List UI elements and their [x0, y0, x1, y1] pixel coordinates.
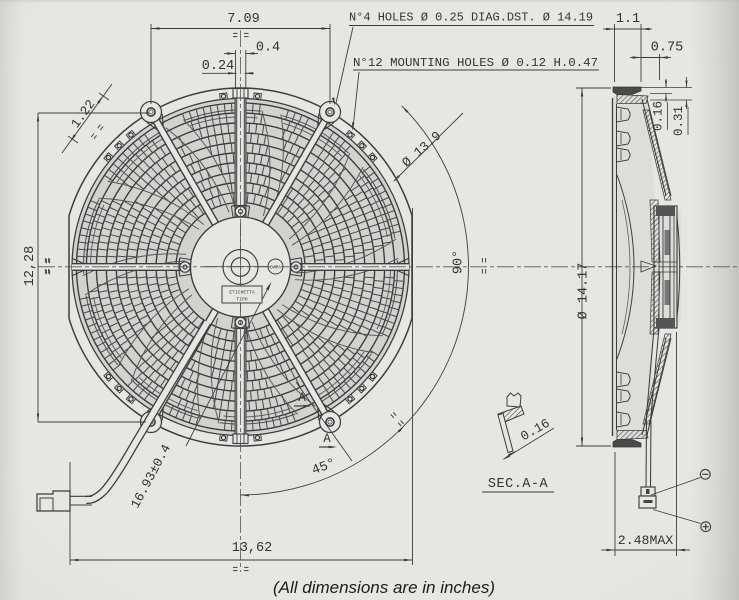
svg-text:12,28: 12,28	[23, 246, 38, 287]
svg-text:N°12 MOUNTING HOLES Ø 0.12 H.0: N°12 MOUNTING HOLES Ø 0.12 H.0.47	[353, 56, 598, 70]
svg-text:0.31: 0.31	[672, 106, 686, 136]
svg-text:0.75: 0.75	[651, 41, 683, 56]
svg-text:0.4: 0.4	[256, 41, 280, 56]
svg-text:(All dimensions are in inches): (All dimensions are in inches)	[273, 578, 495, 597]
svg-text:A: A	[323, 432, 331, 446]
svg-text:0.16: 0.16	[652, 101, 666, 131]
svg-text:2.48MAX: 2.48MAX	[618, 533, 673, 548]
svg-text:N°4 HOLES Ø 0.25 DIAG.DST. Ø 1: N°4 HOLES Ø 0.25 DIAG.DST. Ø 14.19	[349, 11, 593, 25]
svg-text:13,62: 13,62	[232, 541, 273, 556]
svg-text:DATA: DATA	[270, 265, 281, 270]
svg-text:Ø 14.17: Ø 14.17	[577, 263, 592, 320]
svg-text:1.1: 1.1	[616, 12, 640, 27]
svg-text:ETICHETTA: ETICHETTA	[229, 290, 255, 296]
svg-text:7.09: 7.09	[227, 12, 259, 27]
svg-text:SEC.A-A: SEC.A-A	[488, 477, 549, 492]
svg-text:90°: 90°	[452, 250, 467, 274]
svg-text:A: A	[298, 391, 306, 405]
svg-text:0.24: 0.24	[202, 59, 234, 74]
svg-text:TIPO: TIPO	[236, 297, 247, 303]
